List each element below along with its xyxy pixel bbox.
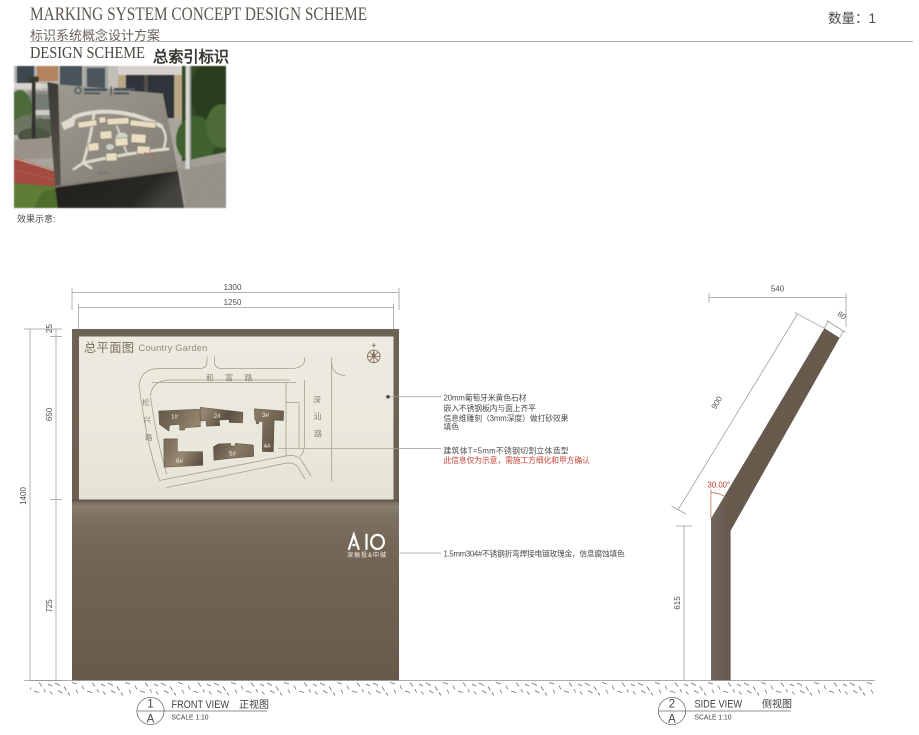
svg-text:1: 1 [147,699,153,711]
svg-text:信息维雕刻（3mm深度）做打砂效果: 信息维雕刻（3mm深度）做打砂效果 [444,413,569,423]
svg-text:1400: 1400 [19,487,28,505]
svg-text:兴: 兴 [144,416,152,425]
svg-text:A: A [668,714,676,726]
svg-text:和富路: 和富路 [206,373,264,383]
svg-text:FRONT VIEW: FRONT VIEW [172,699,230,711]
svg-text:路: 路 [314,429,322,439]
svg-text:3#: 3# [262,412,270,419]
svg-text:1300: 1300 [224,283,242,292]
svg-text:615: 615 [673,596,682,610]
svg-text:A: A [147,714,155,726]
svg-text:路: 路 [145,432,153,442]
svg-text:此信息仅为示意，需施工方细化和甲方确认: 此信息仅为示意，需施工方细化和甲方确认 [444,455,591,465]
svg-text:深振投&中城: 深振投&中城 [347,551,387,559]
svg-text:25: 25 [45,324,54,333]
svg-text:20mm葡萄牙米黄色石材: 20mm葡萄牙米黄色石材 [444,393,527,403]
svg-text:填色: 填色 [444,421,460,431]
svg-text:嵌入不锈钢板内与面上齐平: 嵌入不锈钢板内与面上齐平 [444,403,537,413]
svg-text:SCALE 1:10: SCALE 1:10 [172,713,209,722]
svg-text:Country Garden: Country Garden [139,343,208,353]
svg-text:650: 650 [45,407,54,421]
svg-text:总平面图: 总平面图 [84,341,134,355]
svg-text:SCALE 1:10: SCALE 1:10 [695,713,732,722]
svg-text:2#: 2# [214,413,222,420]
svg-text:1250: 1250 [224,298,242,307]
svg-text:6#: 6# [176,458,184,465]
svg-text:深: 深 [313,396,321,405]
svg-text:松: 松 [142,397,150,407]
svg-text:汕: 汕 [314,411,322,421]
svg-text:1#: 1# [171,414,179,421]
svg-text:4#: 4# [264,443,272,450]
svg-text:正视图: 正视图 [239,698,269,711]
svg-text:5#: 5# [229,450,237,457]
svg-text:侧视图: 侧视图 [762,698,792,711]
svg-text:30.00°: 30.00° [708,481,731,490]
svg-text:540: 540 [771,285,785,294]
svg-text:900: 900 [710,394,725,411]
svg-text:建筑体T=5mm不锈钢切割立体造型: 建筑体T=5mm不锈钢切割立体造型 [444,445,569,455]
svg-text:1.5mm304#不锈钢折弯焊接电镀玫瑰金，信息腐蚀填色: 1.5mm304#不锈钢折弯焊接电镀玫瑰金，信息腐蚀填色 [444,549,625,559]
svg-text:SIDE VIEW: SIDE VIEW [695,699,743,711]
svg-text:725: 725 [45,599,54,613]
svg-text:2: 2 [669,699,675,711]
